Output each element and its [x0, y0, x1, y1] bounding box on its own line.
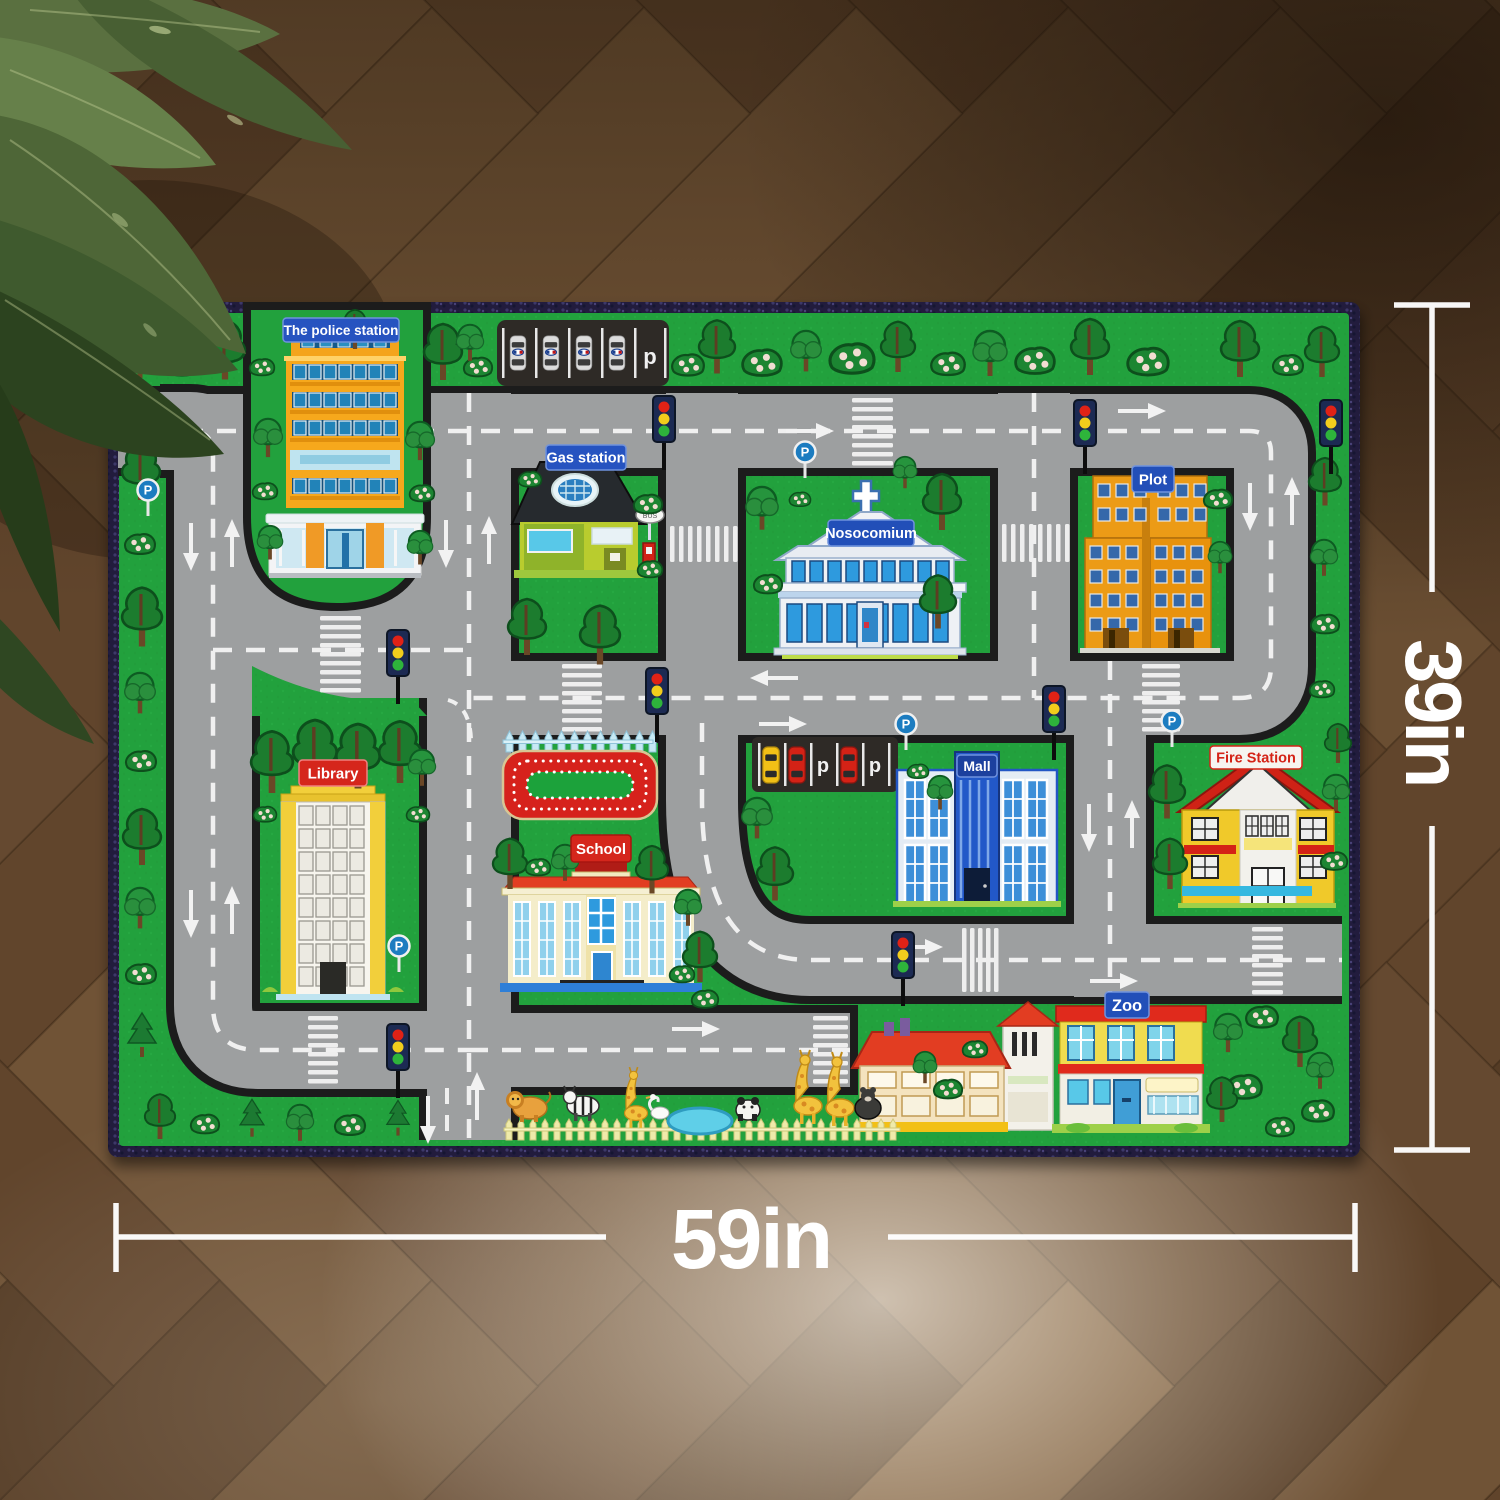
- svg-text:p: p: [643, 344, 656, 369]
- svg-text:39in: 39in: [1389, 639, 1478, 785]
- svg-text:Zoo: Zoo: [1112, 997, 1142, 1015]
- svg-text:Library: Library: [308, 765, 360, 782]
- svg-text:The police station: The police station: [284, 323, 399, 338]
- svg-text:Gas station: Gas station: [547, 451, 626, 467]
- svg-text:Plot: Plot: [1139, 471, 1167, 488]
- svg-text:59in: 59in: [671, 1192, 831, 1286]
- svg-text:Mall: Mall: [963, 758, 990, 774]
- svg-text:p: p: [869, 755, 881, 777]
- svg-text:Nosocomium: Nosocomium: [825, 526, 917, 542]
- svg-text:School: School: [576, 841, 626, 858]
- svg-text:p: p: [817, 755, 829, 777]
- svg-text:Fire Station: Fire Station: [1216, 751, 1296, 767]
